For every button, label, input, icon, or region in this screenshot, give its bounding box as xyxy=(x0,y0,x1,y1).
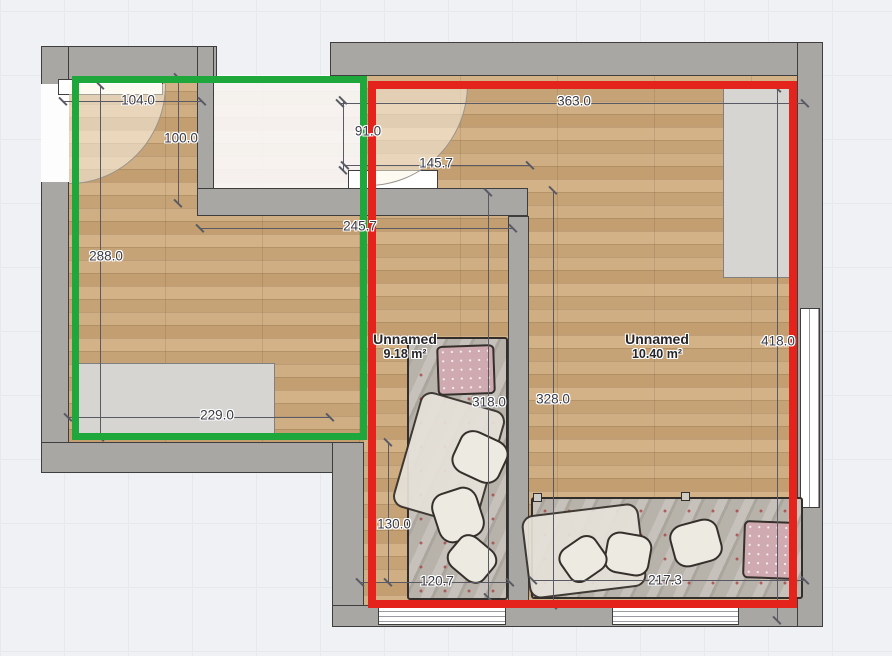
dimension-label[interactable]: 229.0 xyxy=(200,408,234,423)
wardrobe-right-room[interactable] xyxy=(723,85,801,278)
dimension-label[interactable]: 120.7 xyxy=(420,574,454,589)
room-label-left[interactable]: Unnamed 9.18 m² xyxy=(373,331,437,362)
wall-niche-bottom[interactable] xyxy=(197,188,528,216)
sideboard-left-room[interactable] xyxy=(77,363,275,439)
dimension-label[interactable]: 217.3 xyxy=(648,573,682,588)
dimension-label[interactable]: 104.0 xyxy=(121,93,155,108)
plan-canvas[interactable]: Unnamed 9.18 m² Unnamed 10.40 m² 104.010… xyxy=(0,0,892,656)
pink-pillow xyxy=(436,344,496,396)
wall-top-right[interactable] xyxy=(330,42,823,76)
dimension-label[interactable]: 130.0 xyxy=(377,517,411,532)
dimension-line[interactable] xyxy=(388,442,389,582)
dimension-label[interactable]: 318.0 xyxy=(472,395,506,410)
dimension-line[interactable] xyxy=(777,88,778,620)
room-label-right[interactable]: Unnamed 10.40 m² xyxy=(625,331,689,362)
bed-post xyxy=(533,493,542,502)
dimension-label[interactable]: 328.0 xyxy=(536,392,570,407)
window-bottom-right[interactable] xyxy=(612,606,739,625)
wall-middle-left-vertical[interactable] xyxy=(332,442,364,627)
dimension-label[interactable]: 91.0 xyxy=(355,124,381,139)
niche-recess xyxy=(213,75,363,188)
dimension-label[interactable]: 100.0 xyxy=(164,131,198,146)
wall-left-lower[interactable] xyxy=(41,180,69,472)
pink-pillow xyxy=(742,520,796,580)
dimension-line[interactable] xyxy=(343,100,344,170)
bed-post xyxy=(681,492,690,501)
room-name: Unnamed xyxy=(373,331,437,347)
pillow xyxy=(666,515,726,570)
wall-bottom-left-room[interactable] xyxy=(41,442,363,473)
dimension-label[interactable]: 245.7 xyxy=(343,219,377,234)
window-bottom-left[interactable] xyxy=(378,606,506,625)
dimension-label[interactable]: 418.0 xyxy=(761,334,795,349)
window-right-wall[interactable] xyxy=(800,308,820,508)
room-area: 9.18 m² xyxy=(373,347,437,362)
dimension-label[interactable]: 363.0 xyxy=(557,94,591,109)
room-name: Unnamed xyxy=(625,331,689,347)
wall-niche-left[interactable] xyxy=(197,46,214,194)
bed-single-vertical[interactable] xyxy=(407,337,508,600)
dimension-label[interactable]: 145.7 xyxy=(419,156,453,171)
door-left-opening[interactable] xyxy=(41,84,69,182)
dimension-label[interactable]: 288.0 xyxy=(89,249,123,264)
room-area: 10.40 m² xyxy=(625,347,689,362)
dimension-line[interactable] xyxy=(68,417,330,418)
pillow xyxy=(602,529,655,578)
